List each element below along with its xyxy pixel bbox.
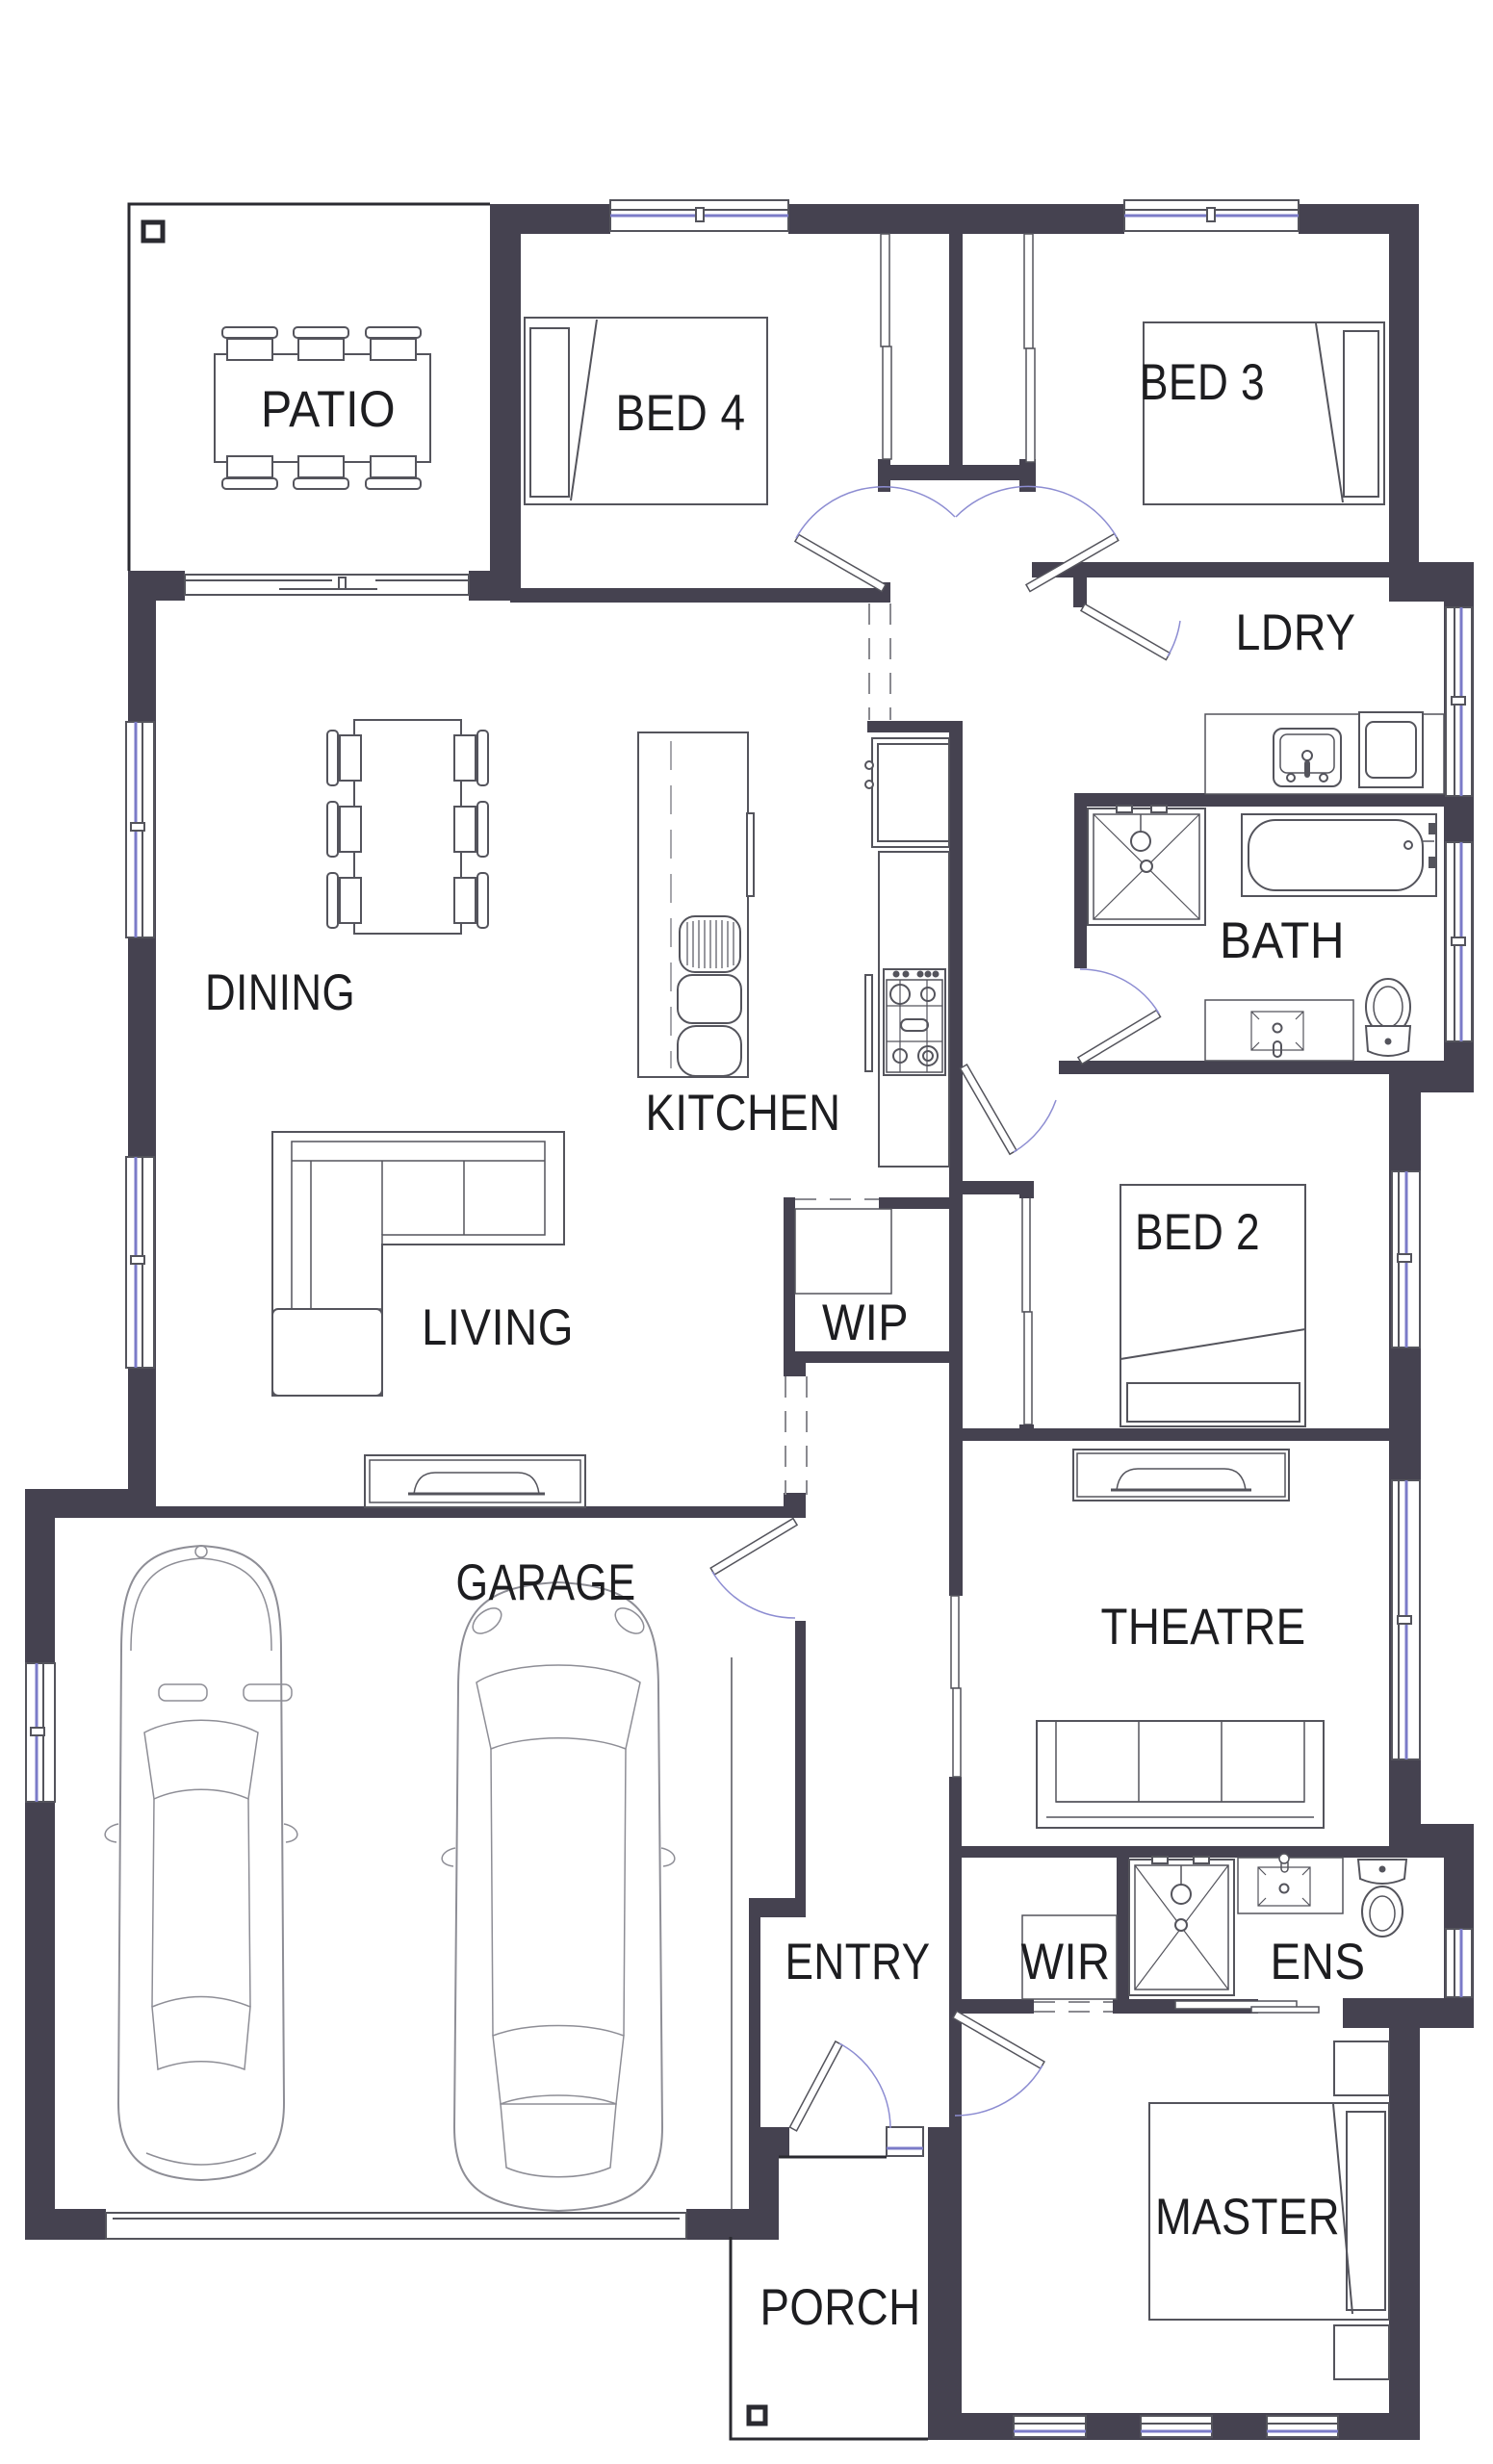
svg-text:WIP: WIP xyxy=(822,1295,909,1351)
svg-text:MASTER: MASTER xyxy=(1155,2189,1340,2246)
svg-text:BED 3: BED 3 xyxy=(1140,354,1265,411)
svg-text:PORCH: PORCH xyxy=(760,2279,921,2336)
svg-text:THEATRE: THEATRE xyxy=(1101,1599,1306,1655)
svg-text:ENTRY: ENTRY xyxy=(785,1934,931,1990)
svg-text:LIVING: LIVING xyxy=(422,1299,574,1356)
svg-text:PATIO: PATIO xyxy=(261,381,396,438)
svg-text:LDRY: LDRY xyxy=(1236,604,1356,661)
svg-text:BED 4: BED 4 xyxy=(616,385,746,442)
svg-text:KITCHEN: KITCHEN xyxy=(646,1085,841,1142)
svg-text:GARAGE: GARAGE xyxy=(456,1554,636,1611)
svg-text:DINING: DINING xyxy=(205,964,355,1021)
svg-text:BATH: BATH xyxy=(1220,912,1345,969)
svg-text:BED 2: BED 2 xyxy=(1135,1204,1260,1261)
svg-text:WIR: WIR xyxy=(1021,1934,1111,1990)
svg-text:ENS: ENS xyxy=(1271,1934,1366,1990)
